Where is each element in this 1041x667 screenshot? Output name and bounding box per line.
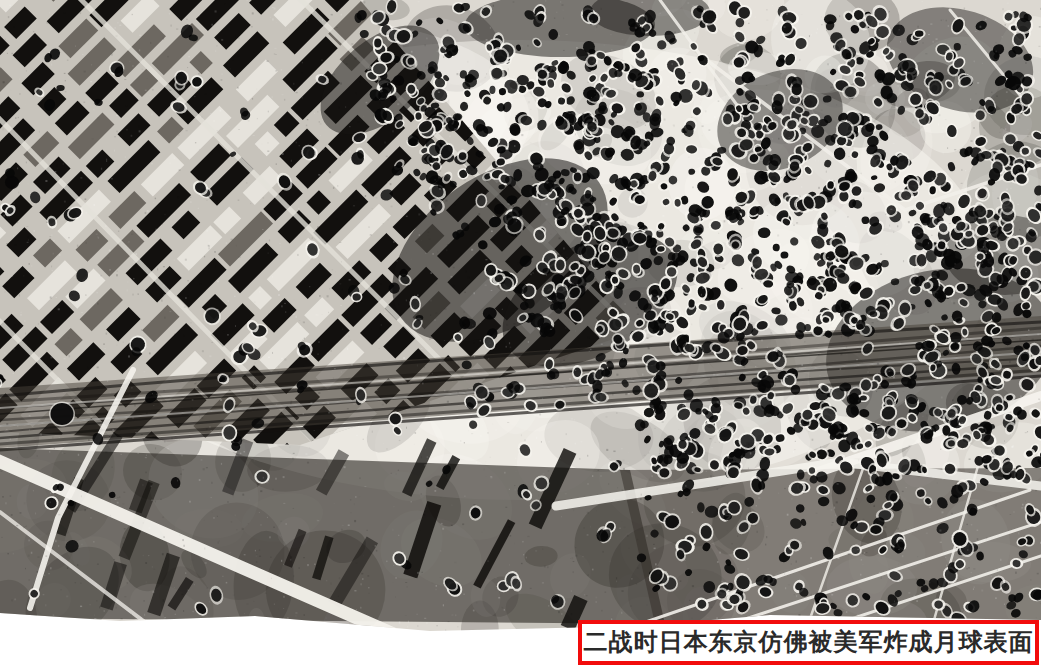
caption-text: 二战时日本东京仿佛被美军炸成月球表面 xyxy=(584,626,1034,658)
screenshot-root: 二战时日本东京仿佛被美军炸成月球表面 xyxy=(0,0,1041,667)
aerial-photo-image xyxy=(0,0,1041,667)
caption-box: 二战时日本东京仿佛被美军炸成月球表面 xyxy=(578,620,1039,665)
